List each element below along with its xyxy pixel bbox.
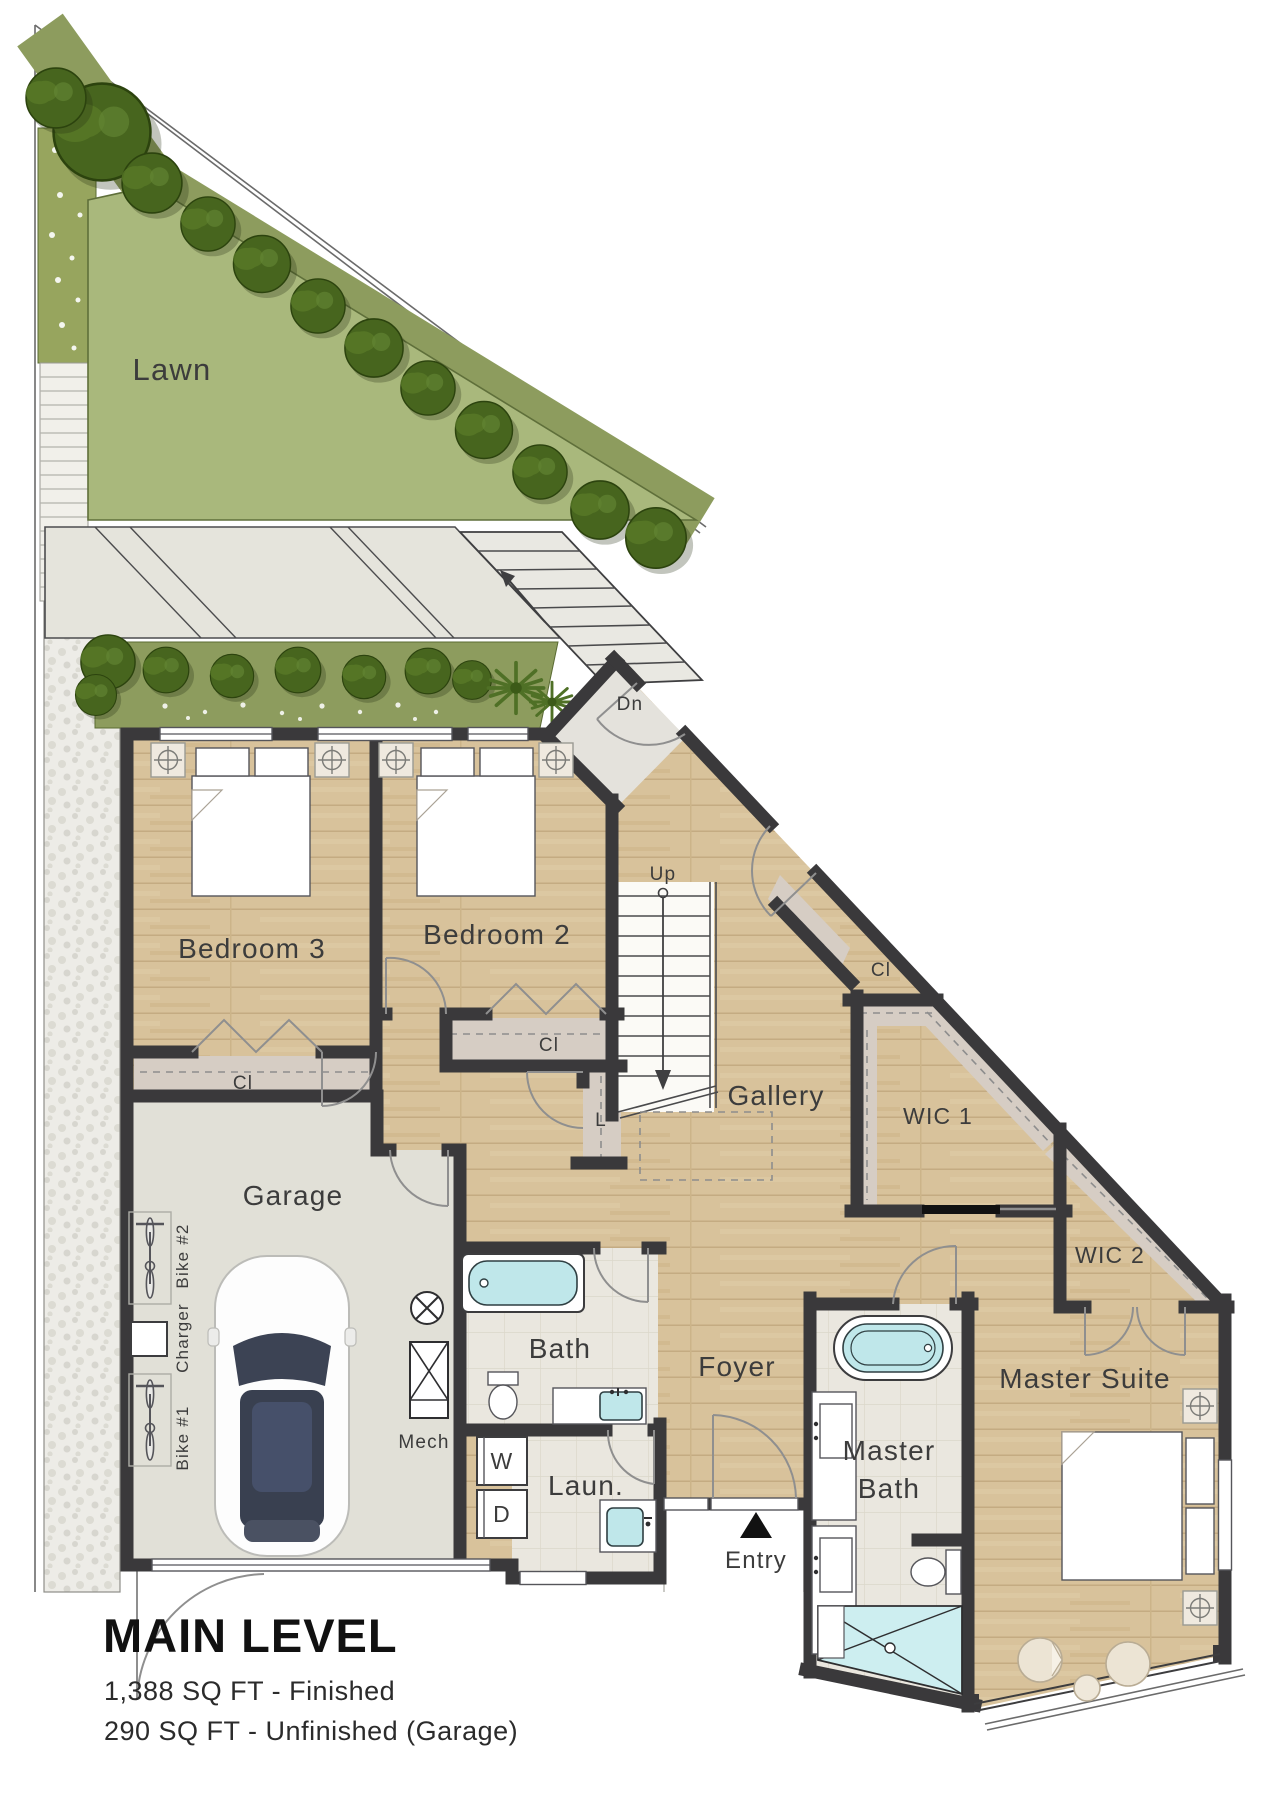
room-label-laundry: Laun. (548, 1470, 624, 1501)
room-label-foyer: Foyer (698, 1351, 776, 1382)
closet-label-gallery: Cl (871, 960, 891, 981)
label-mech: Mech (398, 1432, 449, 1453)
dryer-label: D (493, 1501, 511, 1527)
closet-label-bedroom2: Cl (539, 1035, 559, 1056)
floor-plan-page: Lawn Dn Up Bedroom 3 Bedroom 2 Cl Cl Cl … (0, 0, 1274, 1798)
garage-door (152, 1559, 490, 1571)
room-label-wic1: WIC 1 (903, 1103, 973, 1129)
nightstand-lamp (1183, 1389, 1217, 1423)
master-suite-east-window (1219, 1460, 1232, 1570)
freestanding-tub (834, 1316, 952, 1380)
stone-path (44, 600, 120, 1592)
closet-label-bedroom3: Cl (233, 1073, 253, 1094)
mech-equipment (410, 1292, 448, 1418)
entry-door-glazing (664, 1498, 708, 1510)
room-label-bedroom2: Bedroom 2 (423, 919, 571, 950)
toilet (488, 1372, 518, 1419)
room-label-bath: Bath (529, 1333, 591, 1364)
garage-label-charger: Charger (173, 1303, 192, 1373)
room-label-garage: Garage (243, 1180, 344, 1211)
room-label-master-bath-1: Master (843, 1435, 936, 1466)
planting-strip-bedrooms (75, 635, 573, 728)
nightstand-lamp (315, 743, 349, 777)
laundry-sink (600, 1500, 656, 1552)
palm-icon (488, 663, 543, 714)
washer-label: W (491, 1448, 514, 1474)
plan-title: MAIN LEVEL (103, 1609, 398, 1662)
closet-floor-bedroom2 (446, 1018, 621, 1064)
stair-up-label: Up (650, 864, 677, 885)
nightstand-lamp (1183, 1591, 1217, 1625)
plan-area-unfinished: 290 SQ FT - Unfinished (Garage) (104, 1716, 518, 1746)
room-label-master-bath-2: Bath (858, 1473, 920, 1504)
bathtub (462, 1254, 584, 1312)
stair-dn-label: Dn (617, 694, 644, 715)
car (208, 1256, 356, 1556)
bath-vanity (553, 1388, 646, 1424)
garage-label-bike2: Bike #2 (173, 1223, 192, 1288)
nightstand-lamp (151, 743, 185, 777)
room-label-gallery: Gallery (727, 1080, 824, 1111)
ev-charger (131, 1322, 167, 1356)
lawn-label: Lawn (133, 352, 212, 387)
laundry-window (520, 1572, 586, 1585)
garage-label-bike1: Bike #1 (173, 1405, 192, 1470)
room-label-master-suite: Master Suite (999, 1363, 1171, 1394)
room-label-bedroom3: Bedroom 3 (178, 933, 326, 964)
bedroom-windows (160, 728, 528, 741)
room-label-wic2: WIC 2 (1075, 1242, 1145, 1268)
nightstand-lamp (539, 743, 573, 777)
floor-plan-drawing: Lawn Dn Up Bedroom 3 Bedroom 2 Cl Cl Cl … (0, 0, 1274, 1798)
closet-label-linen: L (595, 1110, 607, 1131)
nightstand-lamp (379, 743, 413, 777)
plan-area-finished: 1,388 SQ FT - Finished (104, 1676, 395, 1706)
title-block: MAIN LEVEL 1,388 SQ FT - Finished 290 SQ… (103, 1609, 518, 1746)
entry-label: Entry (725, 1547, 787, 1574)
